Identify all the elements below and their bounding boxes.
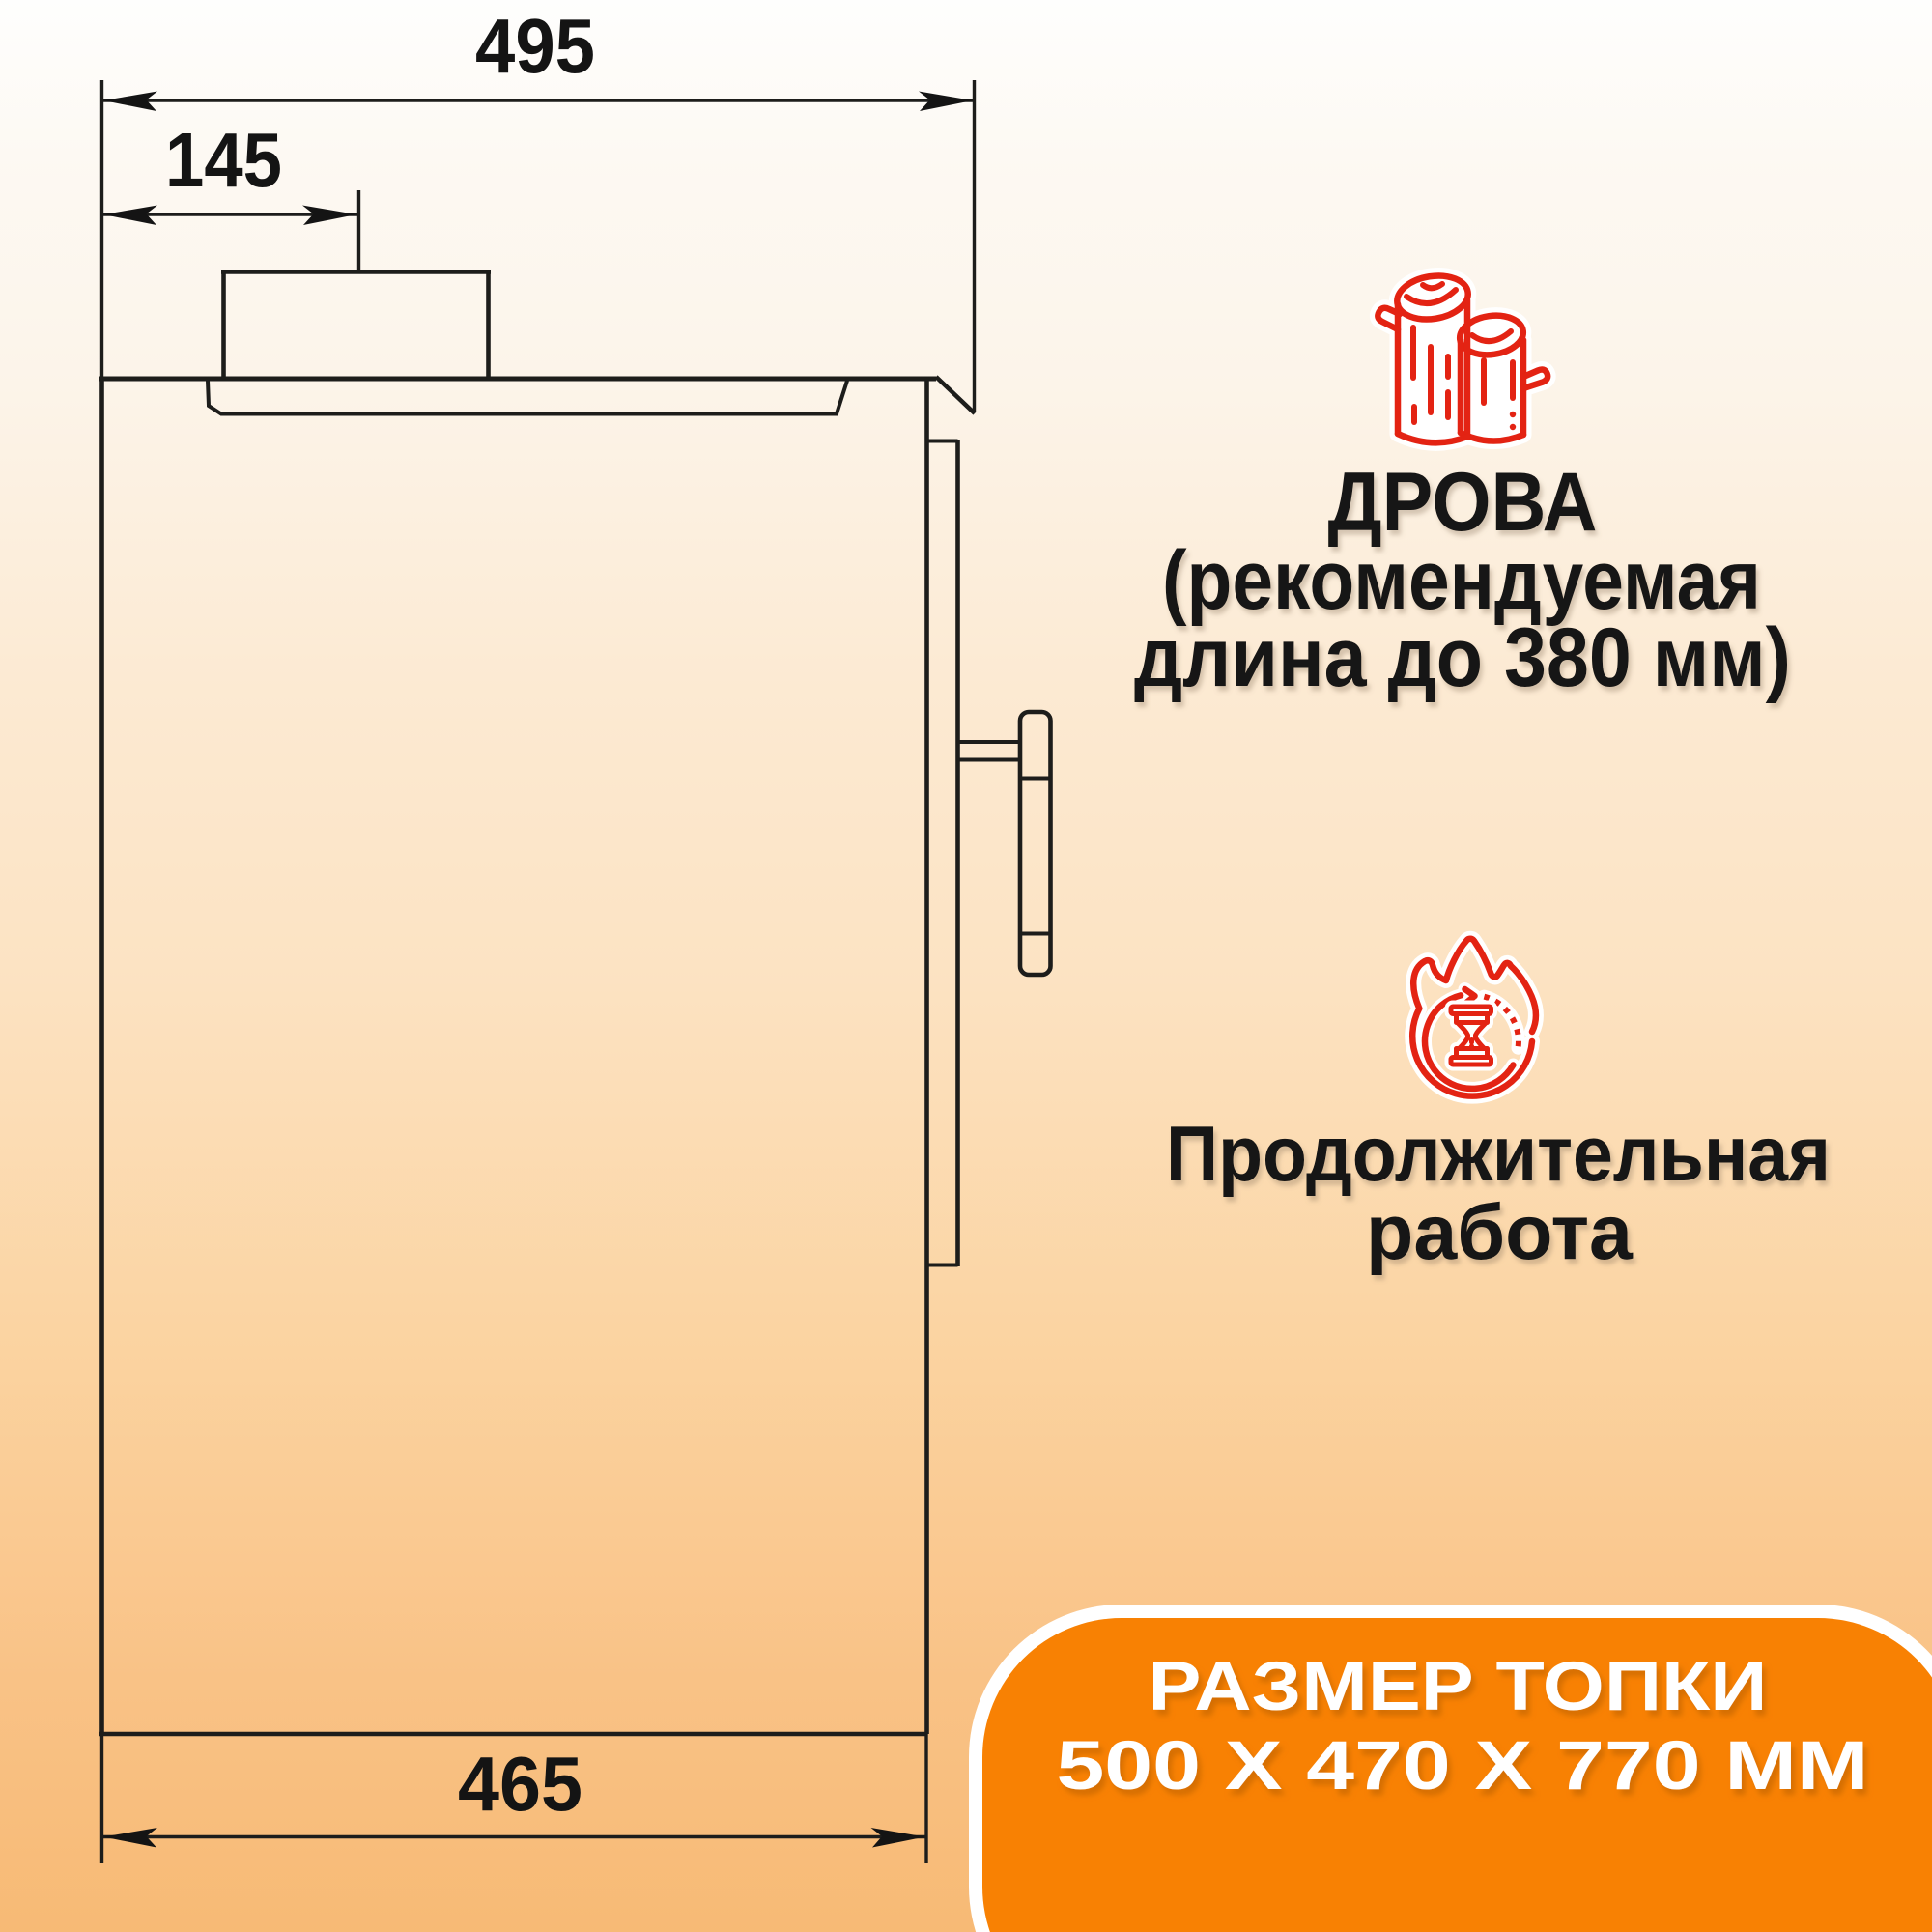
svg-text:500 Х 470 Х 770 ММ: 500 Х 470 Х 770 ММ [1057,1728,1869,1804]
svg-text:495: 495 [475,3,595,89]
svg-text:РАЗМЕР ТОПКИ: РАЗМЕР ТОПКИ [1149,1649,1768,1725]
svg-text:Продолжительная: Продолжительная [1166,1111,1831,1198]
svg-text:465: 465 [458,1741,582,1827]
svg-text:работа: работа [1366,1189,1634,1276]
svg-text:145: 145 [165,117,282,203]
svg-text:длина до 380 мм): длина до 380 мм) [1134,611,1791,704]
